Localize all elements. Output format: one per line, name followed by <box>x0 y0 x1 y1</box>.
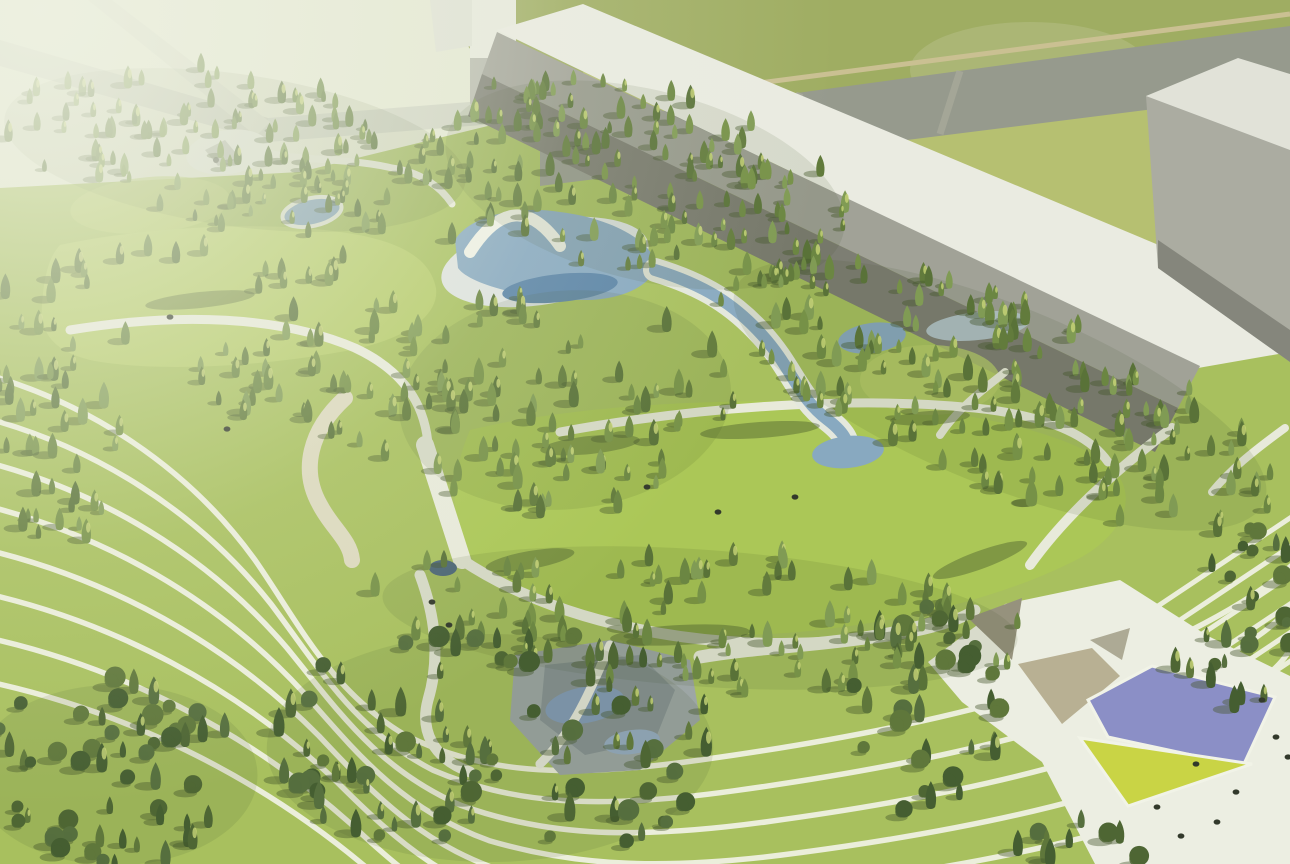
glare-overlay <box>0 0 1290 864</box>
park-scene-svg <box>0 0 1290 864</box>
aerial-park-rendering <box>0 0 1290 864</box>
corner-glare <box>0 0 1290 864</box>
